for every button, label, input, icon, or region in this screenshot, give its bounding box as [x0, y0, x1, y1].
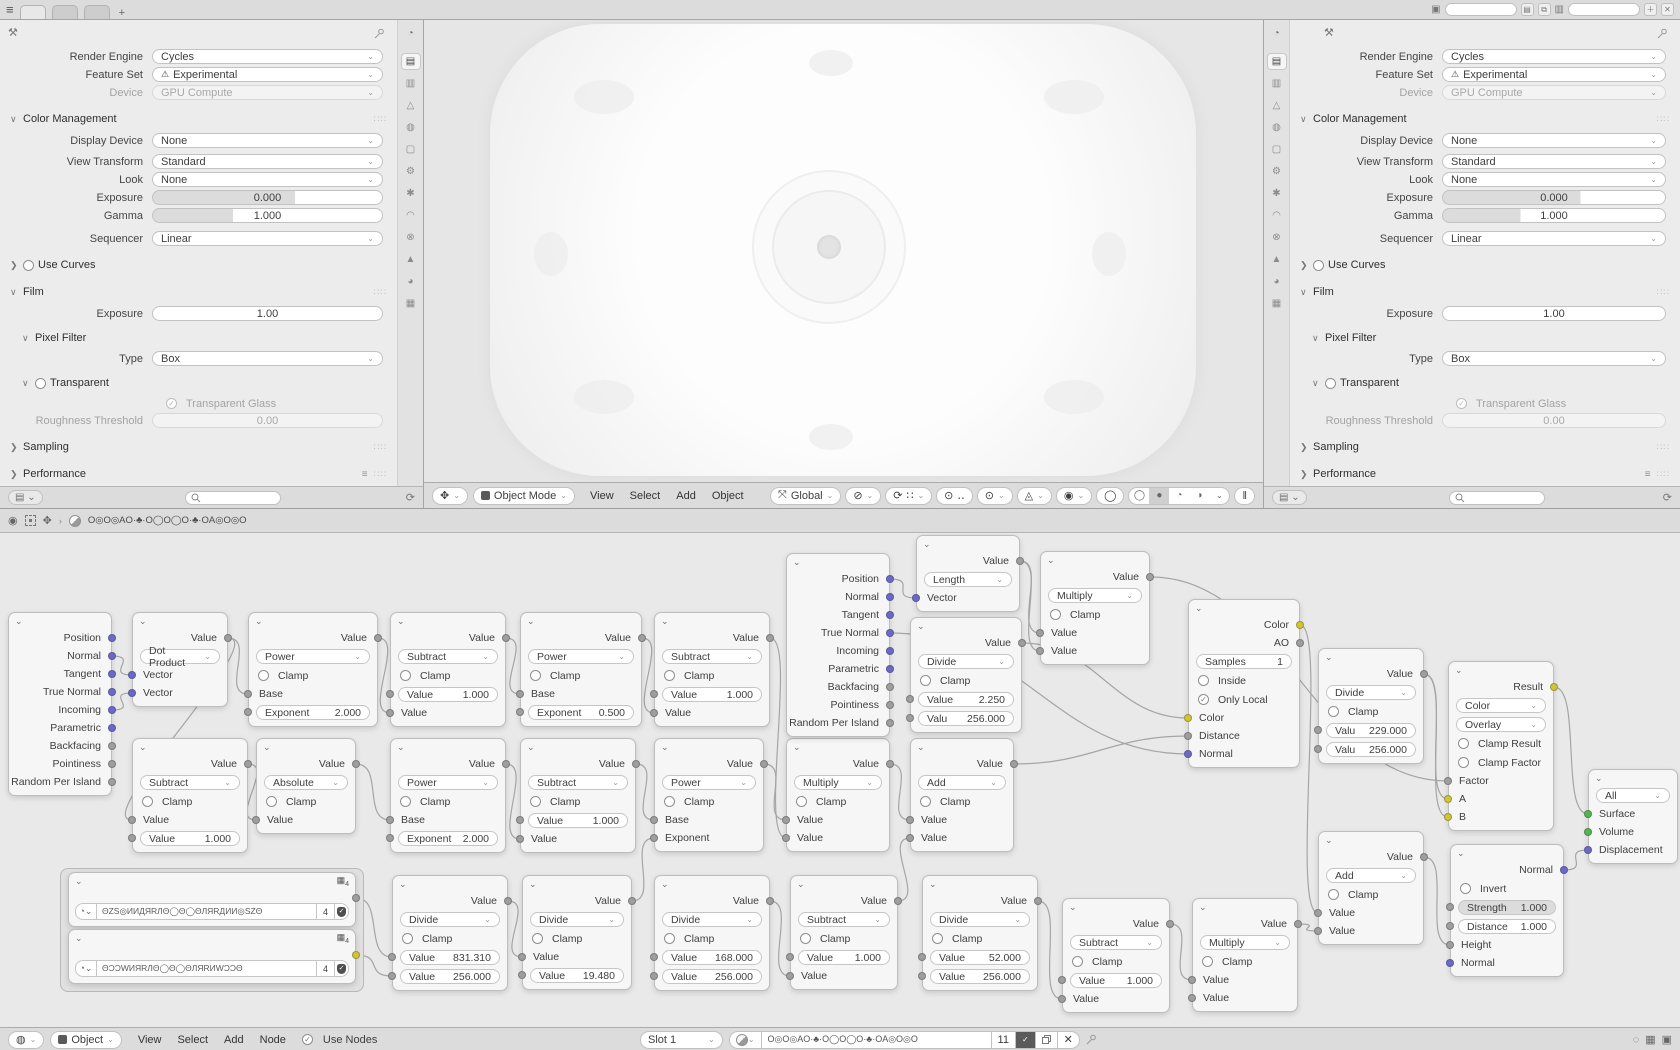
input-socket[interactable] [516, 708, 524, 716]
input-socket[interactable] [782, 816, 790, 824]
output-socket[interactable] [1560, 866, 1568, 874]
output-socket[interactable] [886, 593, 894, 601]
input-socket[interactable] [1184, 732, 1192, 740]
editor-selector-icon[interactable]: ◔ [1268, 26, 1286, 41]
section-sampling[interactable]: ❯Sampling∷∷ [1290, 438, 1680, 456]
operation-select[interactable]: Subtract⌄ [528, 775, 628, 790]
editor-selector-icon[interactable]: ◔ [402, 26, 420, 41]
node-add2[interactable]: ⌄ValueAdd⌄ClampValueValue [1318, 831, 1424, 945]
proportional-edit-dropdown[interactable]: ⟳∷⌄ [885, 487, 932, 505]
field-valu[interactable]: Valu229.000 [1326, 723, 1416, 738]
operation-select[interactable]: Subtract⌄ [1070, 935, 1162, 950]
select-sequencer[interactable]: Linear⌄ [1442, 231, 1666, 246]
shader-type-dropdown[interactable]: Object⌄ [50, 1031, 122, 1049]
checkbox-clamp[interactable] [800, 933, 811, 944]
operation-select[interactable]: Divide⌄ [400, 912, 500, 927]
input-socket[interactable] [1314, 745, 1322, 753]
operation-select[interactable]: All⌄ [1596, 788, 1670, 803]
node-header[interactable]: ⌄ [1063, 899, 1169, 915]
checkbox-use-curves[interactable] [1313, 260, 1324, 271]
collapse-chevron-icon[interactable]: ⌄ [661, 879, 669, 890]
section-transparent[interactable]: ∨Transparent [0, 374, 397, 392]
node-header[interactable]: ⌄ [655, 613, 769, 629]
output-socket[interactable] [352, 894, 360, 902]
select-device[interactable]: GPU Compute⌄ [152, 85, 383, 100]
select-render-engine[interactable]: Cycles⌄ [152, 49, 383, 64]
field-value[interactable]: Value2.250 [918, 692, 1014, 707]
operation-select[interactable]: Power⌄ [662, 775, 756, 790]
node-header[interactable]: ⌄ [249, 613, 377, 629]
checkbox-clamp[interactable] [920, 796, 931, 807]
tab-physics-icon[interactable]: ⊗ [402, 230, 420, 245]
output-socket[interactable] [886, 611, 894, 619]
output-socket[interactable] [1296, 621, 1304, 629]
input-socket[interactable] [1188, 994, 1196, 1002]
fake-user-button[interactable]: ✓ [1016, 1031, 1036, 1049]
operation-select[interactable]: Dot Product⌄ [140, 649, 220, 664]
input-socket[interactable] [518, 971, 526, 979]
node-mul3[interactable]: ⌄ValueMultiply⌄ClampValueValue [1192, 898, 1298, 1012]
checkbox-clamp[interactable] [1328, 706, 1339, 717]
operation-select[interactable]: Divide⌄ [1326, 685, 1416, 700]
annotate-pill[interactable]: ⊙‥ [936, 487, 973, 505]
input-socket[interactable] [128, 834, 136, 842]
operation-select[interactable]: Add⌄ [918, 775, 1006, 790]
node-abs1[interactable]: ⌄ValueAbsolute⌄ClampValue [256, 738, 356, 834]
checkbox-clamp[interactable] [796, 796, 807, 807]
input-socket[interactable] [650, 709, 658, 717]
input-socket[interactable] [650, 690, 658, 698]
menu-add[interactable]: Add [676, 490, 696, 502]
tab-scene-icon[interactable]: ◍ [402, 120, 420, 135]
node-header[interactable]: ⌄ [655, 876, 769, 892]
use-nodes-checkbox[interactable]: ✓ [302, 1034, 313, 1045]
node-header[interactable]: ⌄ [521, 739, 635, 755]
tab-output-icon[interactable]: ▥ [1268, 76, 1286, 91]
field-exponent[interactable]: Exponent2.000 [256, 705, 370, 720]
input-socket[interactable] [1584, 828, 1592, 836]
collapse-chevron-icon[interactable]: ⌄ [923, 539, 931, 550]
operation-select[interactable]: Multiply⌄ [794, 775, 882, 790]
operation-select[interactable]: Power⌄ [256, 649, 370, 664]
scene-selector[interactable] [1445, 3, 1517, 16]
node-header[interactable]: ⌄ [911, 739, 1013, 755]
copy-material-button[interactable] [1036, 1031, 1058, 1049]
node-div1[interactable]: ⌄ValueDivide⌄ClampValue2.250Valu256.000 [910, 617, 1022, 733]
tab-particles-icon[interactable]: ◠ [402, 208, 420, 223]
select-view-transform[interactable]: Standard⌄ [1442, 154, 1666, 169]
node-sub3[interactable]: ⌄ValueSubtract⌄ClampValueValue1.000 [132, 738, 248, 853]
node-header[interactable]: ⌄ [523, 876, 631, 892]
input-socket[interactable] [128, 671, 136, 679]
user-count[interactable]: 4 [317, 903, 335, 920]
output-socket[interactable] [502, 760, 510, 768]
output-socket[interactable] [108, 760, 116, 768]
collapse-chevron-icon[interactable]: ⌄ [1455, 665, 1463, 676]
node-header[interactable]: ⌄ [257, 739, 355, 755]
input-socket[interactable] [244, 708, 252, 716]
node-header[interactable]: ⌄ [1041, 552, 1149, 568]
collapse-chevron-icon[interactable]: ⌄ [139, 742, 147, 753]
operation-select[interactable]: Absolute⌄ [264, 775, 348, 790]
menu-select[interactable]: Select [177, 1034, 208, 1046]
tab-constraints-icon[interactable]: ▲ [402, 252, 420, 267]
output-socket[interactable] [108, 688, 116, 696]
overlays-dropdown[interactable]: ◉⌄ [1056, 487, 1092, 505]
checkbox-only-local[interactable]: ✓ [1198, 694, 1209, 705]
checkbox-clamp[interactable] [664, 670, 675, 681]
editor-type-button[interactable]: ▤ ⌄ [8, 490, 43, 505]
node-div2[interactable]: ⌄ValueDivide⌄ClampValu229.000Valu256.000 [1318, 648, 1424, 764]
output-socket[interactable] [766, 634, 774, 642]
add-workspace-button[interactable]: + [116, 7, 128, 19]
operation-select[interactable]: Color⌄ [1456, 698, 1546, 713]
collapse-chevron-icon[interactable]: ⌄ [1047, 555, 1055, 566]
add-view-layer-button[interactable]: ＋ [1644, 3, 1657, 16]
menu-view[interactable]: View [590, 490, 614, 502]
output-socket[interactable] [886, 647, 894, 655]
checkbox-clamp[interactable] [1050, 609, 1061, 620]
node-header[interactable]: ⌄ [393, 876, 507, 892]
checkbox-transparent-glass[interactable]: ✓ [166, 398, 177, 409]
field-roughness-threshold[interactable]: 0.00 [152, 413, 383, 428]
collapse-chevron-icon[interactable]: ⌄ [661, 742, 669, 753]
output-socket[interactable] [886, 701, 894, 709]
select-sequencer[interactable]: Linear⌄ [152, 231, 383, 246]
input-socket[interactable] [906, 834, 914, 842]
search-input[interactable] [185, 491, 281, 505]
node-header[interactable]: ⌄ [1319, 649, 1423, 665]
collapse-chevron-icon[interactable]: ⌄ [929, 879, 937, 890]
node-img1[interactable]: ⌄▦4◔⌄ΘZS◎ИИДЯRЛΘ◯Θ◯ΘЛЯRДИИ◎SZΘ4✓ [68, 872, 356, 927]
browse-icon[interactable]: ◔⌄ [75, 903, 97, 920]
field-value[interactable]: Value19.480 [530, 968, 624, 983]
field-value[interactable]: Value52.000 [930, 950, 1030, 965]
output-socket[interactable] [374, 634, 382, 642]
node-header[interactable]: ⌄ [1449, 662, 1553, 678]
operation-select[interactable]: Subtract⌄ [798, 912, 890, 927]
checkbox-clamp[interactable] [402, 933, 413, 944]
slider-exposure[interactable]: 0.000 [1442, 190, 1666, 205]
search-input[interactable] [1449, 491, 1545, 505]
select-type[interactable]: Box⌄ [152, 351, 383, 366]
field-samples[interactable]: Samples1 [1196, 654, 1292, 669]
menu-add[interactable]: Add [224, 1034, 244, 1046]
node-header[interactable]: ⌄ [391, 613, 505, 629]
menu-object[interactable]: Object [712, 490, 744, 502]
select-look[interactable]: None⌄ [1442, 172, 1666, 187]
input-socket[interactable] [388, 972, 396, 980]
editor-type-icon[interactable]: ◉ [8, 514, 18, 527]
operation-select[interactable]: Subtract⌄ [140, 775, 240, 790]
input-socket[interactable] [128, 689, 136, 697]
input-socket[interactable] [906, 816, 914, 824]
input-socket[interactable] [1314, 726, 1322, 734]
node-sub5[interactable]: ⌄ValueSubtract⌄ClampValue1.000Value [790, 875, 898, 990]
field-value[interactable]: Value256.000 [662, 969, 762, 984]
slot-dropdown[interactable]: Slot 1⌄ [640, 1031, 723, 1049]
shading-rendered-icon[interactable]: ◑ [1189, 487, 1209, 505]
field-value[interactable]: Value1.000 [140, 831, 240, 846]
node-header[interactable]: ⌄ [791, 876, 897, 892]
output-socket[interactable] [1010, 760, 1018, 768]
tab-view-layer-icon[interactable]: △ [402, 98, 420, 113]
operation-select[interactable]: Length⌄ [924, 572, 1012, 587]
input-socket[interactable] [1584, 810, 1592, 818]
node-geo1[interactable]: ⌄PositionNormalTangentTrue NormalIncomin… [8, 612, 112, 796]
chevron-down-icon[interactable]: ⌄ [1209, 487, 1229, 505]
node-mul2[interactable]: ⌄ValueMultiply⌄ClampValueValue [1040, 551, 1150, 665]
collapse-chevron-icon[interactable]: ⌄ [793, 742, 801, 753]
select-feature-set[interactable]: ⚠Experimental⌄ [152, 67, 383, 82]
input-socket[interactable] [1444, 777, 1452, 785]
tab-constraints-icon[interactable]: ▲ [1268, 252, 1286, 267]
input-socket[interactable] [918, 972, 926, 980]
viewport-3d[interactable]: ✥⌄ Object Mode⌄ ViewSelectAddObject ⤧Glo… [424, 20, 1263, 508]
operation-select[interactable]: Subtract⌄ [662, 649, 762, 664]
collapse-chevron-icon[interactable]: ⌄ [397, 616, 405, 627]
collapse-chevron-icon[interactable]: ⌄ [793, 557, 801, 568]
tab-modifiers-icon[interactable]: ✱ [402, 186, 420, 201]
collapse-chevron-icon[interactable]: ⌄ [1595, 773, 1603, 784]
input-socket[interactable] [650, 972, 658, 980]
checkbox-clamp[interactable] [1072, 956, 1083, 967]
tab-material-icon[interactable]: ▦ [402, 296, 420, 311]
field-valu[interactable]: Valu256.000 [918, 711, 1014, 726]
collapse-chevron-icon[interactable]: ⌄ [263, 742, 271, 753]
menu-node[interactable]: Node [260, 1034, 286, 1046]
input-socket[interactable] [650, 816, 658, 824]
node-header[interactable]: ⌄ [391, 739, 505, 755]
output-socket[interactable] [1420, 670, 1428, 678]
node-sub6[interactable]: ⌄ValueSubtract⌄ClampValue1.000Value [1062, 898, 1170, 1013]
pin-icon[interactable] [1086, 1034, 1097, 1045]
output-socket[interactable] [352, 760, 360, 768]
collapse-chevron-icon[interactable]: ⌄ [397, 742, 405, 753]
field-value[interactable]: Value1.000 [798, 950, 890, 965]
editor-type-dropdown[interactable]: ◍⌄ [8, 1031, 44, 1049]
output-socket[interactable] [1550, 683, 1558, 691]
checkbox-clamp[interactable] [400, 670, 411, 681]
select-display-device[interactable]: None⌄ [1442, 133, 1666, 148]
filter-button[interactable]: ⟳ [1663, 491, 1672, 504]
output-socket[interactable] [886, 665, 894, 673]
section-pixel-filter[interactable]: ∨Pixel Filter [1290, 329, 1680, 347]
tool-mode-dropdown[interactable]: ✥⌄ [432, 487, 468, 505]
node-header[interactable]: ⌄ [1451, 845, 1563, 861]
output-socket[interactable] [632, 760, 640, 768]
tab-world-icon[interactable]: ▢ [402, 142, 420, 157]
slider-gamma[interactable]: 1.000 [152, 208, 383, 223]
node-header[interactable]: ⌄ [917, 536, 1019, 552]
collapse-chevron-icon[interactable]: ⌄ [917, 742, 925, 753]
input-socket[interactable] [516, 816, 524, 824]
node-pow1[interactable]: ⌄ValuePower⌄ClampBaseExponent2.000 [248, 612, 378, 727]
field-value[interactable]: Value168.000 [662, 950, 762, 965]
snap-toggle-icon[interactable]: ◌ [1633, 1034, 1640, 1046]
output-socket[interactable] [108, 634, 116, 642]
field-value[interactable]: Value1.000 [528, 813, 628, 828]
tab-view-layer-icon[interactable]: △ [1268, 98, 1286, 113]
select-feature-set[interactable]: ⚠Experimental⌄ [1442, 67, 1666, 82]
input-socket[interactable] [912, 594, 920, 602]
output-socket[interactable] [1166, 920, 1174, 928]
input-socket[interactable] [1446, 903, 1454, 911]
input-socket[interactable] [1446, 922, 1454, 930]
tab-material-icon[interactable]: ▦ [1268, 296, 1286, 311]
field-value[interactable]: Value1.000 [662, 687, 762, 702]
input-socket[interactable] [1036, 647, 1044, 655]
input-socket[interactable] [1584, 846, 1592, 854]
checkbox-clamp[interactable] [1202, 956, 1213, 967]
operation-select[interactable]: Overlay⌄ [1456, 717, 1546, 732]
checkbox-clamp[interactable] [400, 796, 411, 807]
checkbox-clamp[interactable] [664, 796, 675, 807]
tab-modifiers-icon[interactable]: ✱ [1268, 186, 1286, 201]
slider-exposure[interactable]: 0.000 [152, 190, 383, 205]
input-socket[interactable] [786, 972, 794, 980]
node-div4[interactable]: ⌄ValueDivide⌄ClampValueValue19.480 [522, 875, 632, 990]
slider-gamma[interactable]: 1.000 [1442, 208, 1666, 223]
field-valu[interactable]: Valu256.000 [1326, 742, 1416, 757]
input-socket[interactable] [516, 690, 524, 698]
output-socket[interactable] [1296, 639, 1304, 647]
node-dot[interactable]: ⌄ValueDot Product⌄VectorVector [132, 612, 228, 707]
gizmos-dropdown[interactable]: ◬⌄ [1017, 487, 1052, 505]
node-bump1[interactable]: ⌄NormalInvertStrength1.000Distance1.000H… [1450, 844, 1564, 977]
operation-select[interactable]: Add⌄ [1326, 868, 1416, 883]
field-distance[interactable]: Distance1.000 [1458, 919, 1556, 934]
output-socket[interactable] [108, 670, 116, 678]
workspace-tab[interactable] [84, 5, 110, 19]
snap-dropdown[interactable]: ⊘⌄ [845, 487, 881, 505]
shading-material-icon[interactable]: ◔ [1169, 487, 1189, 505]
node-pow3[interactable]: ⌄ValuePower⌄ClampBaseExponent2.000 [390, 738, 506, 853]
material-user-count[interactable]: 11 [992, 1031, 1016, 1049]
checker-icon[interactable]: ▦ [1645, 1033, 1655, 1046]
checkbox-clamp[interactable] [142, 796, 153, 807]
checkbox-clamp[interactable] [530, 796, 541, 807]
collapse-chevron-icon[interactable]: ⌄ [661, 616, 669, 627]
tab-output-icon[interactable]: ▥ [402, 76, 420, 91]
output-socket[interactable] [766, 897, 774, 905]
input-socket[interactable] [650, 834, 658, 842]
field-value[interactable]: Value256.000 [930, 969, 1030, 984]
input-socket[interactable] [1446, 959, 1454, 967]
node-div3[interactable]: ⌄ValueDivide⌄ClampValue831.310Value256.0… [392, 875, 508, 991]
node-header[interactable]: ⌄ [1189, 600, 1299, 616]
output-socket[interactable] [1018, 639, 1026, 647]
field-value[interactable]: Value256.000 [400, 969, 500, 984]
section-color-management[interactable]: ∨Color Management∷∷ [0, 110, 397, 128]
field-exposure[interactable]: 1.00 [152, 306, 383, 321]
field-roughness-threshold[interactable]: 0.00 [1442, 413, 1666, 428]
shading-wireframe-icon[interactable]: ◯ [1129, 487, 1149, 505]
collapse-chevron-icon[interactable]: ⌄ [75, 933, 83, 944]
pause-render-button[interactable]: ‖ [1234, 487, 1255, 505]
output-socket[interactable] [886, 629, 894, 637]
node-mix1[interactable]: ⌄ResultColor⌄Overlay⌄Clamp ResultClamp F… [1448, 661, 1554, 831]
workspace-tab[interactable] [20, 5, 46, 19]
node-geo2[interactable]: ⌄PositionNormalTangentTrue NormalIncomin… [786, 553, 890, 737]
fake-user-icon[interactable]: ✓ [335, 960, 349, 977]
checkbox-clamp[interactable] [664, 933, 675, 944]
output-socket[interactable] [628, 897, 636, 905]
checkbox-transparent[interactable] [35, 378, 46, 389]
operation-select[interactable]: Subtract⌄ [398, 649, 498, 664]
node-header[interactable]: ⌄ [521, 613, 641, 629]
tab-render-icon[interactable]: ▤ [1268, 54, 1286, 69]
tab-physics-icon[interactable]: ⊗ [1268, 230, 1286, 245]
input-socket[interactable] [386, 690, 394, 698]
output-socket[interactable] [108, 652, 116, 660]
output-socket[interactable] [352, 951, 360, 959]
output-socket[interactable] [1146, 573, 1154, 581]
collapse-chevron-icon[interactable]: ⌄ [1199, 902, 1207, 913]
editor-type-button[interactable]: ▤ ⌄ [1272, 490, 1307, 505]
orientation-dropdown[interactable]: ⤧Global⌄ [770, 487, 841, 505]
input-socket[interactable] [386, 834, 394, 842]
section-transparent[interactable]: ∨Transparent [1290, 374, 1680, 392]
node-sub1[interactable]: ⌄ValueSubtract⌄ClampValue1.000Value [390, 612, 506, 727]
input-socket[interactable] [918, 953, 926, 961]
input-socket[interactable] [128, 816, 136, 824]
checkbox-transparent[interactable] [1325, 378, 1336, 389]
operation-select[interactable]: Divide⌄ [530, 912, 624, 927]
input-socket[interactable] [906, 714, 914, 722]
select-display-device[interactable]: None⌄ [152, 133, 383, 148]
pin-icon[interactable] [374, 28, 385, 39]
copy-scene-button[interactable]: ⧉ [1538, 3, 1551, 16]
material-name-field[interactable]: O◎O◎AO·♣·O◯O◯O·♣·OA◎O◎O [762, 1031, 992, 1049]
mode-dropdown[interactable]: Object Mode⌄ [473, 487, 575, 505]
collapse-chevron-icon[interactable]: ⌄ [139, 616, 147, 627]
node-ao1[interactable]: ⌄ColorAOSamples1Inside✓Only LocalColorDi… [1188, 599, 1300, 768]
input-socket[interactable] [1184, 750, 1192, 758]
node-header[interactable]: ⌄▦4 [69, 930, 355, 946]
operation-select[interactable]: Power⌄ [528, 649, 634, 664]
select-view-transform[interactable]: Standard⌄ [152, 154, 383, 169]
collapse-chevron-icon[interactable]: ⌄ [529, 879, 537, 890]
input-socket[interactable] [1444, 813, 1452, 821]
input-socket[interactable] [1188, 976, 1196, 984]
node-header[interactable]: ⌄ [1319, 832, 1423, 848]
field-exponent[interactable]: Exponent2.000 [398, 831, 498, 846]
input-socket[interactable] [906, 695, 914, 703]
user-count[interactable]: 4 [317, 960, 335, 977]
field-strength[interactable]: Strength1.000 [1458, 900, 1556, 915]
node-header[interactable]: ⌄▦4 [69, 873, 355, 889]
collapse-chevron-icon[interactable]: ⌄ [1325, 652, 1333, 663]
node-sub2[interactable]: ⌄ValueSubtract⌄ClampValue1.000Value [654, 612, 770, 727]
collapse-chevron-icon[interactable]: ⌄ [527, 616, 535, 627]
input-socket[interactable] [386, 816, 394, 824]
input-socket[interactable] [244, 690, 252, 698]
collapse-chevron-icon[interactable]: ⌄ [1457, 848, 1465, 859]
select-look[interactable]: None⌄ [152, 172, 383, 187]
visibility-dropdown[interactable]: ⊙⌄ [977, 487, 1013, 505]
field-value[interactable]: Value831.310 [400, 950, 500, 965]
output-socket[interactable] [886, 760, 894, 768]
operation-select[interactable]: Divide⌄ [918, 654, 1014, 669]
filter-button[interactable]: ⟳ [406, 491, 415, 504]
output-socket[interactable] [108, 724, 116, 732]
section-film[interactable]: ∨Film∷∷ [1290, 283, 1680, 301]
section-performance[interactable]: ❯Performance≡∷∷ [0, 465, 397, 483]
output-socket[interactable] [1420, 853, 1428, 861]
section-color-management[interactable]: ∨Color Management∷∷ [1290, 110, 1680, 128]
datablock-name[interactable]: ΘƆƆWИЯRЛΘ◯Θ◯ΘЛЯRИWƆƆΘ [97, 960, 317, 977]
